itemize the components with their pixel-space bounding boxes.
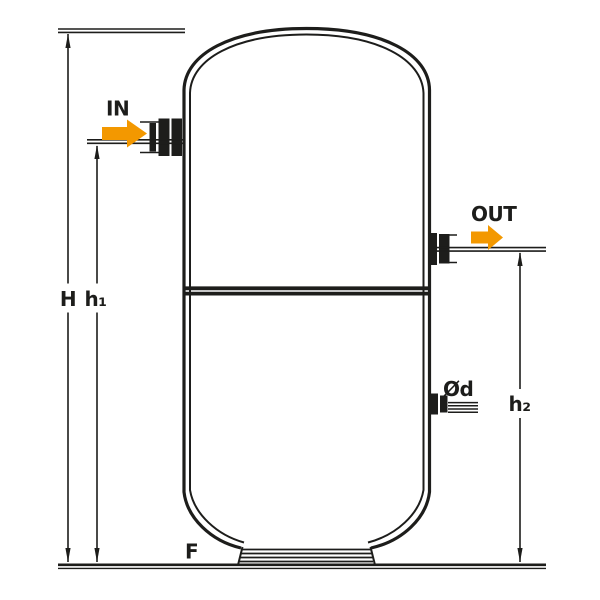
outlet-fitting-flange [439,234,450,264]
ground-line [58,565,546,569]
arrowhead-down [94,548,99,562]
outlet-flow-arrow [471,225,503,250]
inlet-fitting-flange [159,119,170,157]
arrowhead-up [94,145,99,159]
tank-weld-seam [185,288,428,293]
outlet-fitting-body [431,233,438,265]
foot-label: F [185,540,198,564]
total-height-label: H [60,287,76,311]
arrowhead-up [517,252,522,266]
dimension-inlet-height: h₁ [84,145,107,562]
drain-port-diameter-label: Ød [443,377,473,401]
inlet-height-label: h₁ [85,287,107,311]
dimension-outlet-height: h₂ [506,252,533,562]
drain-port-body [431,394,439,415]
outlet-centerline [437,248,546,252]
outlet-height-label: h₂ [509,392,531,416]
inlet-fitting [140,119,182,157]
arrowhead-down [65,548,70,562]
arrowhead-up [65,34,70,48]
tank-dimension-diagram: IN OUT Ød H h₁ [0,0,600,600]
inlet-label: IN [106,97,129,121]
outlet-label: OUT [471,202,517,226]
base-skirt [238,547,375,565]
arrowhead-down [517,548,522,562]
outlet-fitting [431,233,458,265]
diagram-canvas: IN OUT Ød H h₁ [0,0,600,600]
inlet-fitting-body [172,119,183,157]
inlet-fitting-collar [150,123,157,152]
